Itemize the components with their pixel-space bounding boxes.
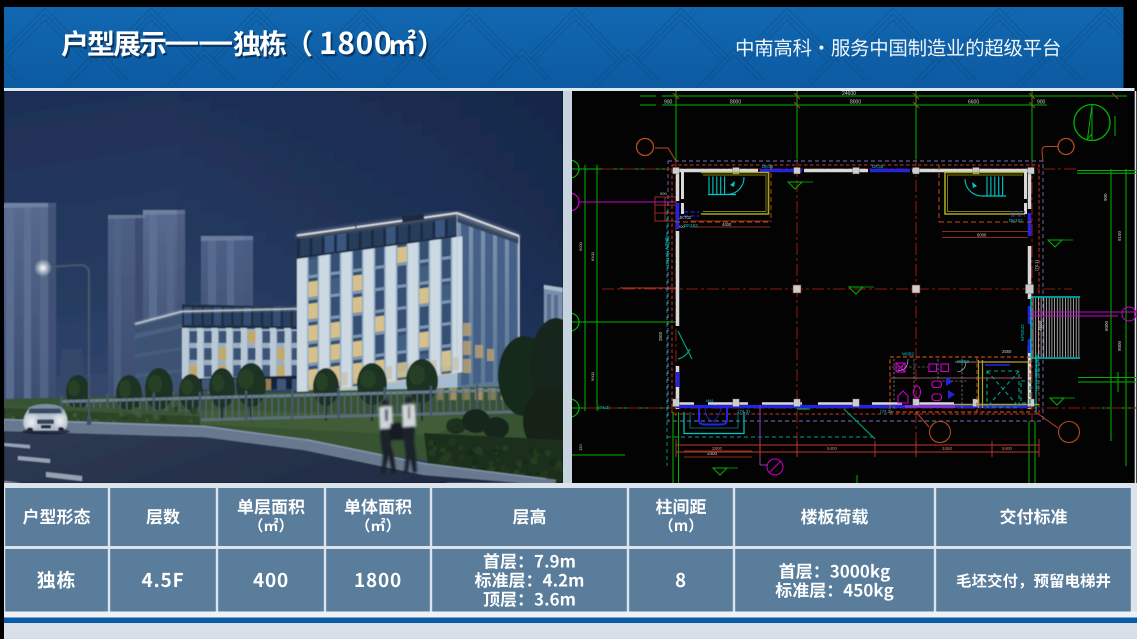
svg-text:JKT02: JKT02 — [679, 215, 692, 220]
svg-text:M81: M81 — [706, 398, 715, 403]
svg-text:(74.3): (74.3) — [598, 405, 610, 410]
svg-text:6000: 6000 — [1104, 320, 1109, 331]
svg-text:8000: 8000 — [850, 100, 861, 106]
svg-text:8100: 8100 — [590, 251, 595, 261]
svg-text:DK10 (预留电梯井): DK10 (预留电梯井) — [1034, 352, 1041, 391]
svg-text:DK102: DK102 — [684, 223, 698, 228]
svg-text:6000: 6000 — [977, 233, 987, 238]
svg-text:900: 900 — [660, 191, 667, 196]
svg-text:W8F2: W8F2 — [957, 359, 969, 364]
svg-text:9000: 9000 — [590, 371, 595, 381]
svg-text:DK10(4人电梯): DK10(4人电梯) — [664, 235, 671, 266]
svg-text:2800: 2800 — [658, 331, 663, 341]
svg-text:4500: 4500 — [1038, 320, 1043, 331]
svg-text:DK102: DK102 — [1009, 218, 1023, 223]
svg-text:5400: 5400 — [1002, 446, 1013, 451]
svg-text:900: 900 — [1037, 100, 1046, 106]
svg-text:5400: 5400 — [827, 446, 838, 451]
svg-text:900: 900 — [1103, 193, 1108, 201]
svg-text:150: 150 — [578, 444, 583, 451]
svg-text:4400: 4400 — [722, 222, 732, 227]
svg-text:DK38: DK38 — [762, 164, 774, 169]
svg-text:DK38: DK38 — [872, 164, 884, 169]
svg-text:9000: 9000 — [578, 241, 583, 251]
svg-text:24600: 24600 — [842, 91, 856, 97]
svg-text:2800: 2800 — [712, 446, 723, 451]
svg-text:900: 900 — [664, 100, 673, 106]
svg-text:3450: 3450 — [942, 446, 953, 451]
svg-text:(74.3): (74.3) — [880, 409, 892, 414]
svg-text:6600: 6600 — [968, 100, 979, 106]
svg-text:9150: 9150 — [1117, 230, 1122, 241]
svg-text:W8B2: W8B2 — [902, 352, 915, 357]
svg-text:KPD642: KPD642 — [1020, 324, 1025, 341]
svg-text:8000: 8000 — [730, 100, 741, 106]
svg-text:(74.3): (74.3) — [738, 409, 750, 414]
svg-text:9000: 9000 — [1117, 340, 1122, 351]
svg-text:(74.1): (74.1) — [1034, 259, 1039, 271]
svg-text:2550: 2550 — [1002, 349, 1012, 354]
